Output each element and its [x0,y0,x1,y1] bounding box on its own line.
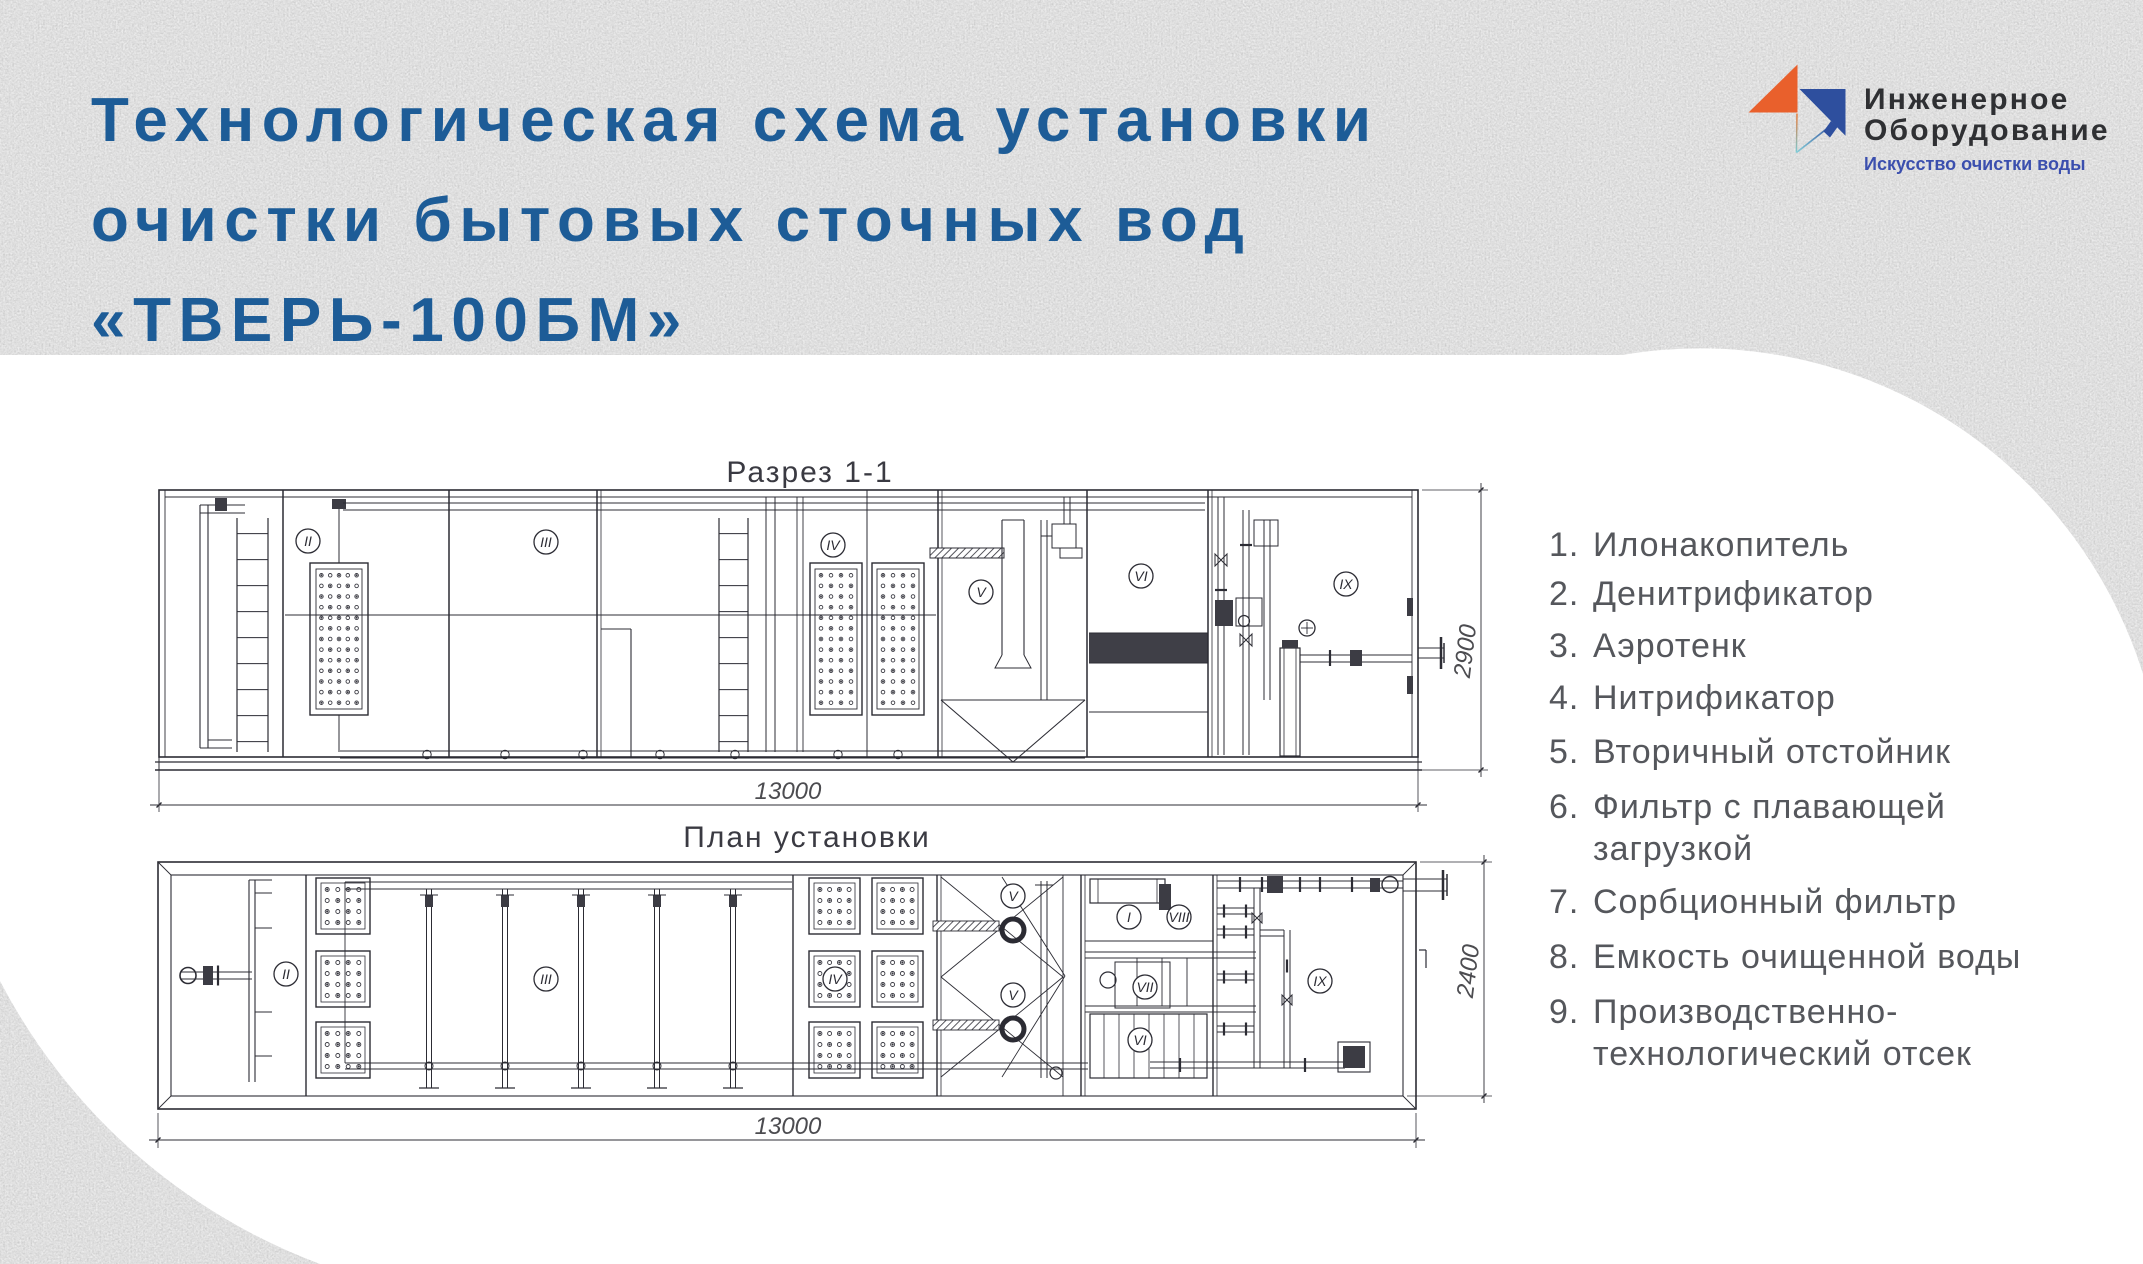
svg-text:VI: VI [1133,1032,1146,1048]
svg-text:IX: IX [1339,576,1353,592]
svg-text:VIII: VIII [1168,909,1189,925]
svg-text:II: II [304,533,312,549]
svg-text:IX: IX [1313,973,1327,989]
svg-text:VII: VII [1136,979,1153,995]
svg-text:13000: 13000 [755,778,822,805]
svg-text:План установки: План установки [683,821,930,854]
svg-text:II: II [282,966,290,982]
svg-text:I: I [1127,909,1131,925]
svg-text:2900: 2900 [1449,622,1483,680]
svg-text:IV: IV [826,537,841,553]
svg-text:IV: IV [828,971,843,987]
svg-text:Разрез 1-1: Разрез 1-1 [726,456,893,489]
svg-text:13000: 13000 [755,1113,822,1140]
svg-text:III: III [540,534,552,550]
svg-text:VI: VI [1134,568,1147,584]
svg-text:III: III [540,971,552,987]
svg-text:2400: 2400 [1452,942,1486,1000]
